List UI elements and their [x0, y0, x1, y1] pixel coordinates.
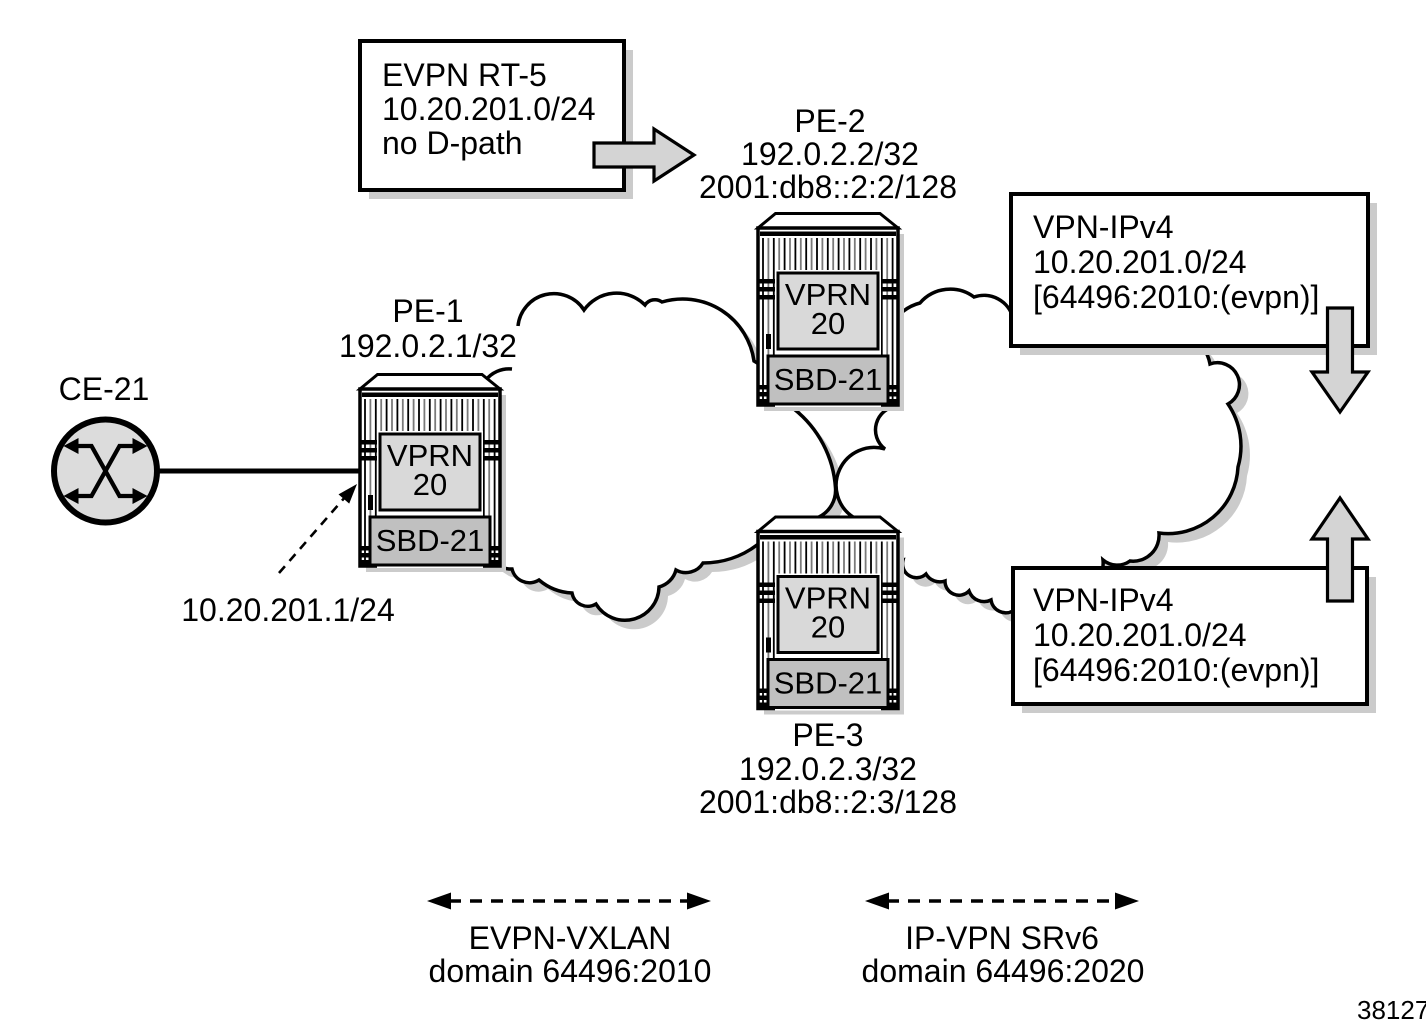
- svg-text:VPN-IPv4: VPN-IPv4: [1033, 209, 1173, 245]
- svg-text:20: 20: [811, 610, 845, 645]
- svg-text:10.20.201.0/24: 10.20.201.0/24: [1033, 617, 1247, 653]
- svg-text:2001:db8::2:3/128: 2001:db8::2:3/128: [699, 784, 957, 820]
- svg-text:192.0.2.2/32: 192.0.2.2/32: [741, 136, 919, 172]
- svg-text:SBD-21: SBD-21: [774, 666, 883, 701]
- svg-text:CE-21: CE-21: [59, 371, 150, 407]
- svg-text:EVPN-VXLAN: EVPN-VXLAN: [469, 920, 672, 956]
- svg-text:10.20.201.0/24: 10.20.201.0/24: [1033, 244, 1247, 280]
- svg-text:PE-2: PE-2: [794, 103, 865, 139]
- svg-text:10.20.201.0/24: 10.20.201.0/24: [382, 91, 596, 127]
- svg-text:PE-1: PE-1: [392, 293, 463, 329]
- svg-text:no D-path: no D-path: [382, 125, 523, 161]
- svg-text:domain 64496:2010: domain 64496:2010: [429, 953, 712, 989]
- svg-text:domain 64496:2020: domain 64496:2020: [862, 953, 1145, 989]
- svg-text:10.20.201.1/24: 10.20.201.1/24: [181, 592, 395, 628]
- svg-text:IP-VPN SRv6: IP-VPN SRv6: [905, 920, 1099, 956]
- svg-text:20: 20: [413, 467, 447, 502]
- svg-text:SBD-21: SBD-21: [376, 523, 485, 558]
- svg-text:192.0.2.1/32: 192.0.2.1/32: [339, 328, 517, 364]
- svg-text:192.0.2.3/32: 192.0.2.3/32: [739, 751, 917, 787]
- svg-text:38127: 38127: [1357, 995, 1426, 1025]
- svg-text:[64496:2010:(evpn)]: [64496:2010:(evpn)]: [1033, 279, 1319, 315]
- svg-text:SBD-21: SBD-21: [774, 362, 883, 397]
- svg-text:20: 20: [811, 306, 845, 341]
- svg-text:VPN-IPv4: VPN-IPv4: [1033, 582, 1173, 618]
- svg-text:[64496:2010:(evpn)]: [64496:2010:(evpn)]: [1033, 652, 1319, 688]
- svg-text:PE-3: PE-3: [792, 717, 863, 753]
- svg-text:EVPN RT-5: EVPN RT-5: [382, 57, 547, 93]
- svg-text:2001:db8::2:2/128: 2001:db8::2:2/128: [699, 169, 957, 205]
